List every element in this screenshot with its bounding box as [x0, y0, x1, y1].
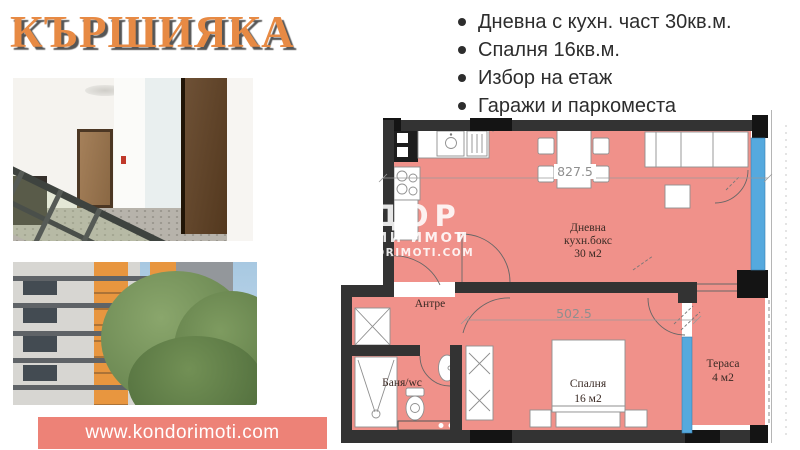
coffee-table [665, 185, 690, 208]
radiator-knob [439, 423, 444, 428]
website-url: www.kondorimoti.com [85, 422, 279, 444]
chair [538, 138, 554, 154]
photo-building [13, 262, 257, 405]
nightstand [625, 410, 647, 427]
living-label-2: кухн.бокс [564, 235, 612, 247]
toilet [406, 396, 424, 420]
photo-hallway [13, 78, 253, 241]
window [23, 308, 57, 324]
floor-plan: 827.5 502.5 Дневна кухн.бокс 30 м2 Антре… [341, 110, 800, 450]
wall-corner [145, 78, 181, 221]
living-label-1: Дневна [570, 222, 606, 234]
bedroom-terrace-window [682, 337, 692, 433]
window [23, 279, 57, 295]
watermark-mid-accent: И [456, 230, 467, 246]
wall-pier [470, 118, 512, 131]
top-right-pier [752, 115, 768, 138]
dim-width-label: 827.5 [557, 164, 593, 179]
chair [538, 166, 554, 182]
facade-lines [769, 110, 786, 443]
dim-depth-label: 502.5 [556, 306, 592, 321]
window [23, 365, 57, 381]
flyer-canvas: КЪРШИЯКА Дневна с кухн. част 30кв.м. Спа… [0, 0, 800, 450]
terrace-label-1: Тераса [707, 358, 740, 370]
bullet-icon [458, 18, 466, 26]
stove [394, 167, 420, 200]
top-wall [383, 120, 768, 131]
bed-footboard [556, 412, 620, 427]
feature-text: Избор на етаж [478, 67, 612, 90]
shaft-opening [397, 133, 408, 143]
window [23, 336, 57, 352]
mid-wall-block [678, 282, 697, 303]
chair [593, 138, 609, 154]
toilet-tank [406, 388, 424, 396]
watermark: ДОР ИМИ ИМОТ И DORIMOTI.COM [360, 199, 474, 259]
mid-wall [455, 282, 697, 293]
page-title: КЪРШИЯКА [10, 6, 330, 58]
sofa [645, 132, 748, 167]
fire-extinguisher-box [121, 156, 126, 164]
dark-entrance-door [181, 78, 227, 234]
bedroom-furniture [466, 340, 647, 427]
bedroom-label-1: Спалня [570, 378, 607, 390]
watermark-letter-fragment [361, 206, 369, 227]
feature-list: Дневна с кухн. част 30кв.м. Спалня 16кв.… [452, 8, 797, 120]
bedroom-label-2: 16 м2 [574, 393, 602, 405]
left-wall-lower [341, 285, 352, 443]
hall-label: Антре [415, 298, 445, 310]
feature-item: Дневна с кухн. част 30кв.м. [452, 8, 797, 36]
bath-wall-left [352, 345, 420, 356]
living-label-3: 30 м2 [574, 248, 602, 260]
sink-tap [450, 133, 452, 135]
feature-text: Дневна с кухн. част 30кв.м. [478, 11, 732, 34]
feature-text: Спалня 16кв.м. [478, 39, 620, 62]
terrace-corner-block [737, 270, 768, 298]
feature-item: Избор на етаж [452, 64, 797, 92]
shaft-opening [397, 147, 408, 157]
corner-pier [750, 425, 768, 443]
bullet-icon [458, 102, 466, 110]
right-wall [227, 78, 253, 241]
terrace-label-2: 4 м2 [712, 372, 734, 384]
shower [355, 357, 397, 427]
nightstand [530, 410, 551, 427]
website-banner: www.kondorimoti.com [38, 417, 327, 449]
watermark-big: ДОР [372, 199, 462, 233]
living-window [751, 138, 765, 270]
bath-label: Баня/wc [382, 377, 422, 389]
bath-side-wall [450, 345, 462, 435]
wall-pier [470, 430, 512, 443]
wardrobe [466, 346, 493, 420]
wooden-door [77, 129, 113, 209]
bullet-icon [458, 74, 466, 82]
watermark-mid: ИМИ ИМОТ [360, 230, 466, 246]
feature-item: Спалня 16кв.м. [452, 36, 797, 64]
bullet-icon [458, 46, 466, 54]
watermark-small: DORIMOTI.COM [365, 247, 474, 259]
